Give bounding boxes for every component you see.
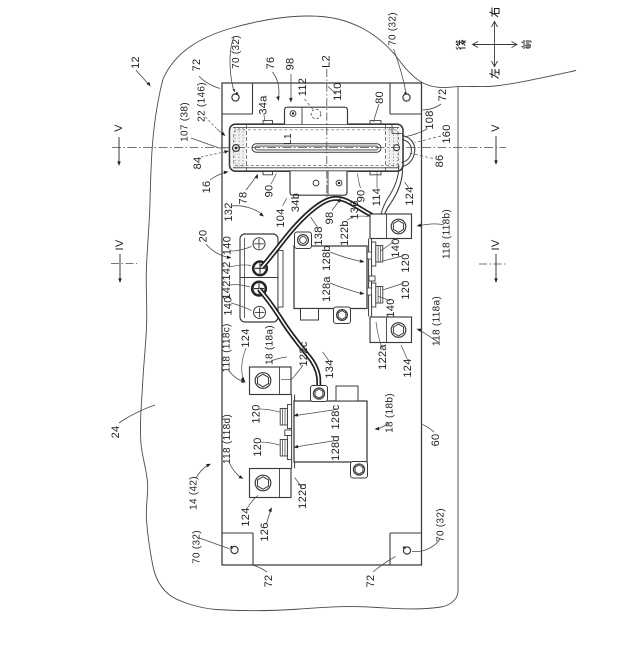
svg-text:138: 138 [313,226,325,245]
svg-text:72: 72 [365,575,377,588]
svg-text:124: 124 [240,328,252,347]
svg-text:134: 134 [324,359,336,378]
svg-text:126: 126 [259,522,271,541]
svg-text:120: 120 [252,437,264,456]
svg-text:V: V [113,124,125,132]
svg-text:108: 108 [424,110,436,129]
svg-text:122d: 122d [297,483,309,509]
svg-text:122a: 122a [377,344,389,370]
svg-text:16: 16 [201,181,213,194]
svg-text:114: 114 [371,188,383,206]
svg-text:98: 98 [324,212,336,225]
svg-text:160: 160 [441,124,453,143]
svg-text:20: 20 [198,230,210,243]
svg-text:118 (118d): 118 (118d) [222,414,233,464]
svg-text:112: 112 [297,78,309,96]
svg-text:22 (146): 22 (146) [197,82,208,122]
svg-text:IV: IV [114,239,126,250]
svg-text:18 (18b): 18 (18b) [385,393,396,433]
svg-text:72: 72 [191,59,203,72]
svg-text:14 (42): 14 (42) [189,476,200,510]
svg-text:120: 120 [400,280,412,299]
svg-text:76: 76 [265,57,277,70]
svg-text:70 (32): 70 (32) [192,530,203,564]
svg-text:118 (118c): 118 (118c) [222,323,233,372]
svg-text:70 (32): 70 (32) [436,508,447,542]
svg-text:78: 78 [238,192,250,205]
svg-text:L1: L1 [283,133,294,145]
svg-text:60: 60 [430,434,442,447]
svg-text:128c: 128c [330,404,342,429]
svg-text:124: 124 [402,358,414,377]
svg-text:122b: 122b [339,220,351,246]
svg-text:128b: 128b [321,245,333,271]
svg-text:86: 86 [434,155,446,168]
svg-text:122c: 122c [298,341,310,366]
svg-text:140: 140 [223,296,235,315]
svg-text:84: 84 [192,157,204,170]
svg-text:80: 80 [374,91,386,104]
svg-text:128d: 128d [330,435,342,461]
svg-text:90: 90 [264,185,276,198]
svg-text:12: 12 [130,56,142,69]
svg-text:24: 24 [110,426,122,439]
svg-text:72: 72 [437,89,449,102]
svg-text:132: 132 [223,202,235,221]
svg-text:IV: IV [490,239,502,250]
svg-text:118 (118b): 118 (118b) [442,209,453,259]
svg-text:120: 120 [251,404,263,423]
svg-text:34a: 34a [258,95,270,115]
svg-text:18 (18a): 18 (18a) [265,325,276,365]
svg-text:104: 104 [275,208,287,227]
svg-text:142: 142 [221,261,233,280]
svg-text:140: 140 [222,236,234,255]
svg-text:124: 124 [404,186,416,205]
svg-text:98: 98 [285,58,297,71]
svg-text:V: V [490,124,502,132]
svg-text:128a: 128a [321,276,333,302]
svg-text:140: 140 [385,298,397,317]
svg-text:72: 72 [263,575,275,588]
svg-text:L2: L2 [320,55,332,68]
svg-text:107 (38): 107 (38) [180,102,191,142]
svg-text:34b: 34b [290,193,302,212]
svg-text:70 (32): 70 (32) [388,12,399,46]
svg-text:124: 124 [240,507,252,526]
